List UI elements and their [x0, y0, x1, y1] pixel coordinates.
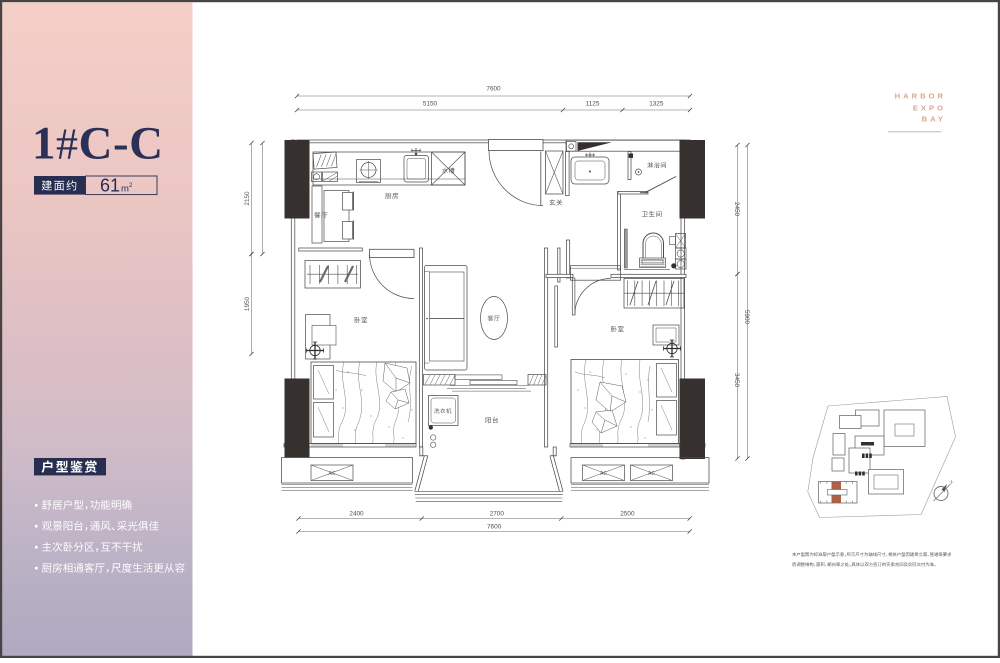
svg-text:5900: 5900 [743, 310, 750, 325]
svg-text:3450: 3450 [733, 373, 740, 388]
svg-text:1325: 1325 [649, 100, 664, 107]
svg-text:2700: 2700 [490, 510, 505, 517]
svg-text:2450: 2450 [733, 202, 740, 217]
svg-text:1#C-C: 1#C-C [32, 118, 164, 170]
svg-text:5150: 5150 [423, 100, 438, 107]
svg-text:1125: 1125 [586, 100, 600, 107]
svg-text:2150: 2150 [244, 191, 251, 206]
svg-text:AC: AC [329, 471, 336, 477]
svg-text:BAY: BAY [922, 114, 946, 123]
svg-text:EXPO: EXPO [913, 103, 946, 112]
svg-text:AC: AC [600, 471, 607, 477]
svg-text:HARBOR: HARBOR [895, 91, 946, 100]
svg-text:AC: AC [648, 471, 655, 477]
svg-text:7600: 7600 [486, 86, 501, 93]
svg-text:61: 61 [100, 175, 120, 195]
svg-text:m: m [121, 183, 129, 194]
svg-text:2500: 2500 [620, 510, 635, 517]
svg-text:1950: 1950 [244, 296, 251, 311]
svg-text:2400: 2400 [349, 510, 364, 517]
svg-text:7600: 7600 [487, 523, 502, 530]
